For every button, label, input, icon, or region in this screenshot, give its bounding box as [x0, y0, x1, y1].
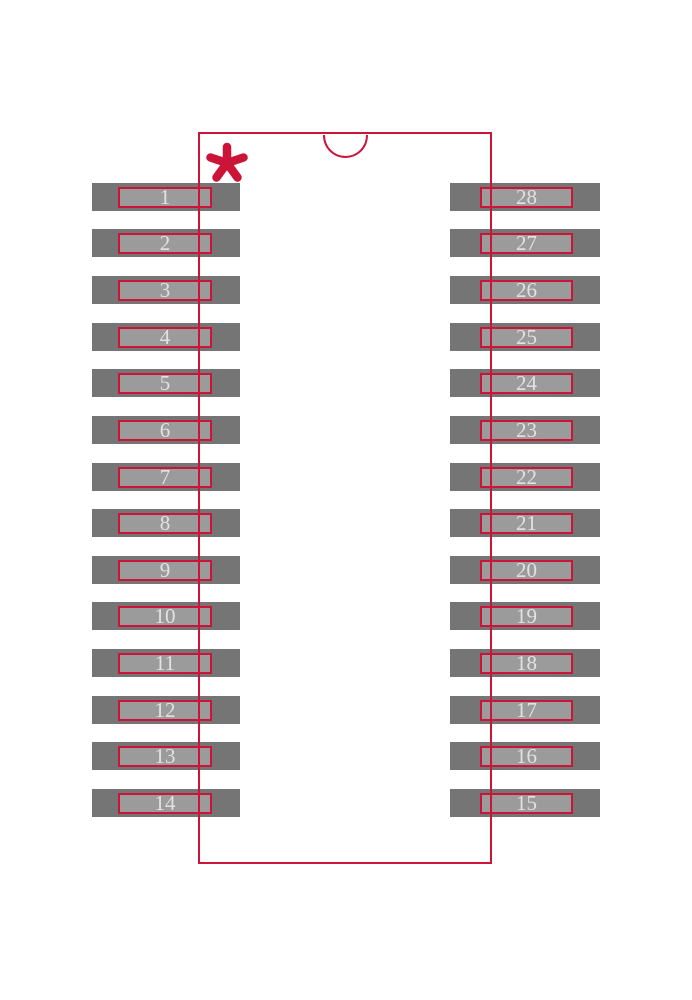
pin-land-7: 7 — [118, 467, 212, 488]
pin-land-24: 24 — [480, 373, 573, 394]
pin-number: 26 — [516, 280, 537, 301]
pin-pad-4: 4 — [92, 323, 240, 351]
pin-pad-17: 17 — [450, 696, 600, 724]
pin-land-5: 5 — [118, 373, 212, 394]
pin-land-3: 3 — [118, 280, 212, 301]
pin-pad-18: 18 — [450, 649, 600, 677]
pin-pad-6: 6 — [92, 416, 240, 444]
pin-pad-16: 16 — [450, 742, 600, 770]
pin-number: 1 — [160, 187, 171, 208]
pin-pad-24: 24 — [450, 369, 600, 397]
pin-land-21: 21 — [480, 513, 573, 534]
pin-land-6: 6 — [118, 420, 212, 441]
pin-pad-5: 5 — [92, 369, 240, 397]
pin-pad-28: 28 — [450, 183, 600, 211]
pin-number: 12 — [155, 700, 176, 721]
pin-land-25: 25 — [480, 327, 573, 348]
pin-land-22: 22 — [480, 467, 573, 488]
pin-pad-10: 10 — [92, 602, 240, 630]
pin-land-19: 19 — [480, 606, 573, 627]
pin-land-28: 28 — [480, 187, 573, 208]
pin-number: 25 — [516, 327, 537, 348]
pin-pad-19: 19 — [450, 602, 600, 630]
pin-land-4: 4 — [118, 327, 212, 348]
pin-pad-7: 7 — [92, 463, 240, 491]
pin-land-1: 1 — [118, 187, 212, 208]
pin-number: 5 — [160, 373, 171, 394]
pin-land-10: 10 — [118, 606, 212, 627]
pin-number: 24 — [516, 373, 537, 394]
pin1-marker-icon — [203, 142, 251, 184]
pin-pad-15: 15 — [450, 789, 600, 817]
pin-pad-9: 9 — [92, 556, 240, 584]
footprint-diagram: 1234567891011121314282726252423222120191… — [0, 0, 692, 1000]
pin-number: 11 — [155, 653, 175, 674]
pin-land-9: 9 — [118, 560, 212, 581]
pin-number: 20 — [516, 560, 537, 581]
pin-land-18: 18 — [480, 653, 573, 674]
pin-pad-22: 22 — [450, 463, 600, 491]
pin-pad-23: 23 — [450, 416, 600, 444]
pin-land-8: 8 — [118, 513, 212, 534]
pin-land-13: 13 — [118, 746, 212, 767]
pin-land-15: 15 — [480, 793, 573, 814]
pin-number: 23 — [516, 420, 537, 441]
pin-land-17: 17 — [480, 700, 573, 721]
pin-pad-8: 8 — [92, 509, 240, 537]
pin-land-2: 2 — [118, 233, 212, 254]
package-body-outline — [198, 132, 492, 864]
pin-pad-14: 14 — [92, 789, 240, 817]
pin-land-26: 26 — [480, 280, 573, 301]
pin-pad-20: 20 — [450, 556, 600, 584]
pin-number: 17 — [516, 700, 537, 721]
pin-number: 3 — [160, 280, 171, 301]
pin-pad-1: 1 — [92, 183, 240, 211]
pin1-notch — [323, 135, 368, 158]
pin-number: 19 — [516, 606, 537, 627]
pin-number: 6 — [160, 420, 171, 441]
pin-pad-2: 2 — [92, 229, 240, 257]
pin-number: 9 — [160, 560, 171, 581]
pin-pad-25: 25 — [450, 323, 600, 351]
pin-pad-13: 13 — [92, 742, 240, 770]
pin-number: 16 — [516, 746, 537, 767]
pin-number: 2 — [160, 233, 171, 254]
pin-number: 14 — [155, 793, 176, 814]
pin-number: 8 — [160, 513, 171, 534]
pin-number: 27 — [516, 233, 537, 254]
pin-pad-3: 3 — [92, 276, 240, 304]
pin-land-12: 12 — [118, 700, 212, 721]
pin-number: 10 — [155, 606, 176, 627]
pin-number: 22 — [516, 467, 537, 488]
pin-land-23: 23 — [480, 420, 573, 441]
pin-pad-11: 11 — [92, 649, 240, 677]
pin-land-16: 16 — [480, 746, 573, 767]
pin-pad-21: 21 — [450, 509, 600, 537]
pin-number: 15 — [516, 793, 537, 814]
pin-number: 7 — [160, 467, 171, 488]
pin-number: 18 — [516, 653, 537, 674]
pin-number: 13 — [155, 746, 176, 767]
pin-number: 21 — [516, 513, 537, 534]
asterisk-arms — [211, 147, 244, 178]
pin-pad-27: 27 — [450, 229, 600, 257]
pin-land-14: 14 — [118, 793, 212, 814]
pin-pad-26: 26 — [450, 276, 600, 304]
pin-pad-12: 12 — [92, 696, 240, 724]
pin-land-11: 11 — [118, 653, 212, 674]
pin-land-27: 27 — [480, 233, 573, 254]
pin-number: 28 — [516, 187, 537, 208]
pin-number: 4 — [160, 327, 171, 348]
pin-land-20: 20 — [480, 560, 573, 581]
